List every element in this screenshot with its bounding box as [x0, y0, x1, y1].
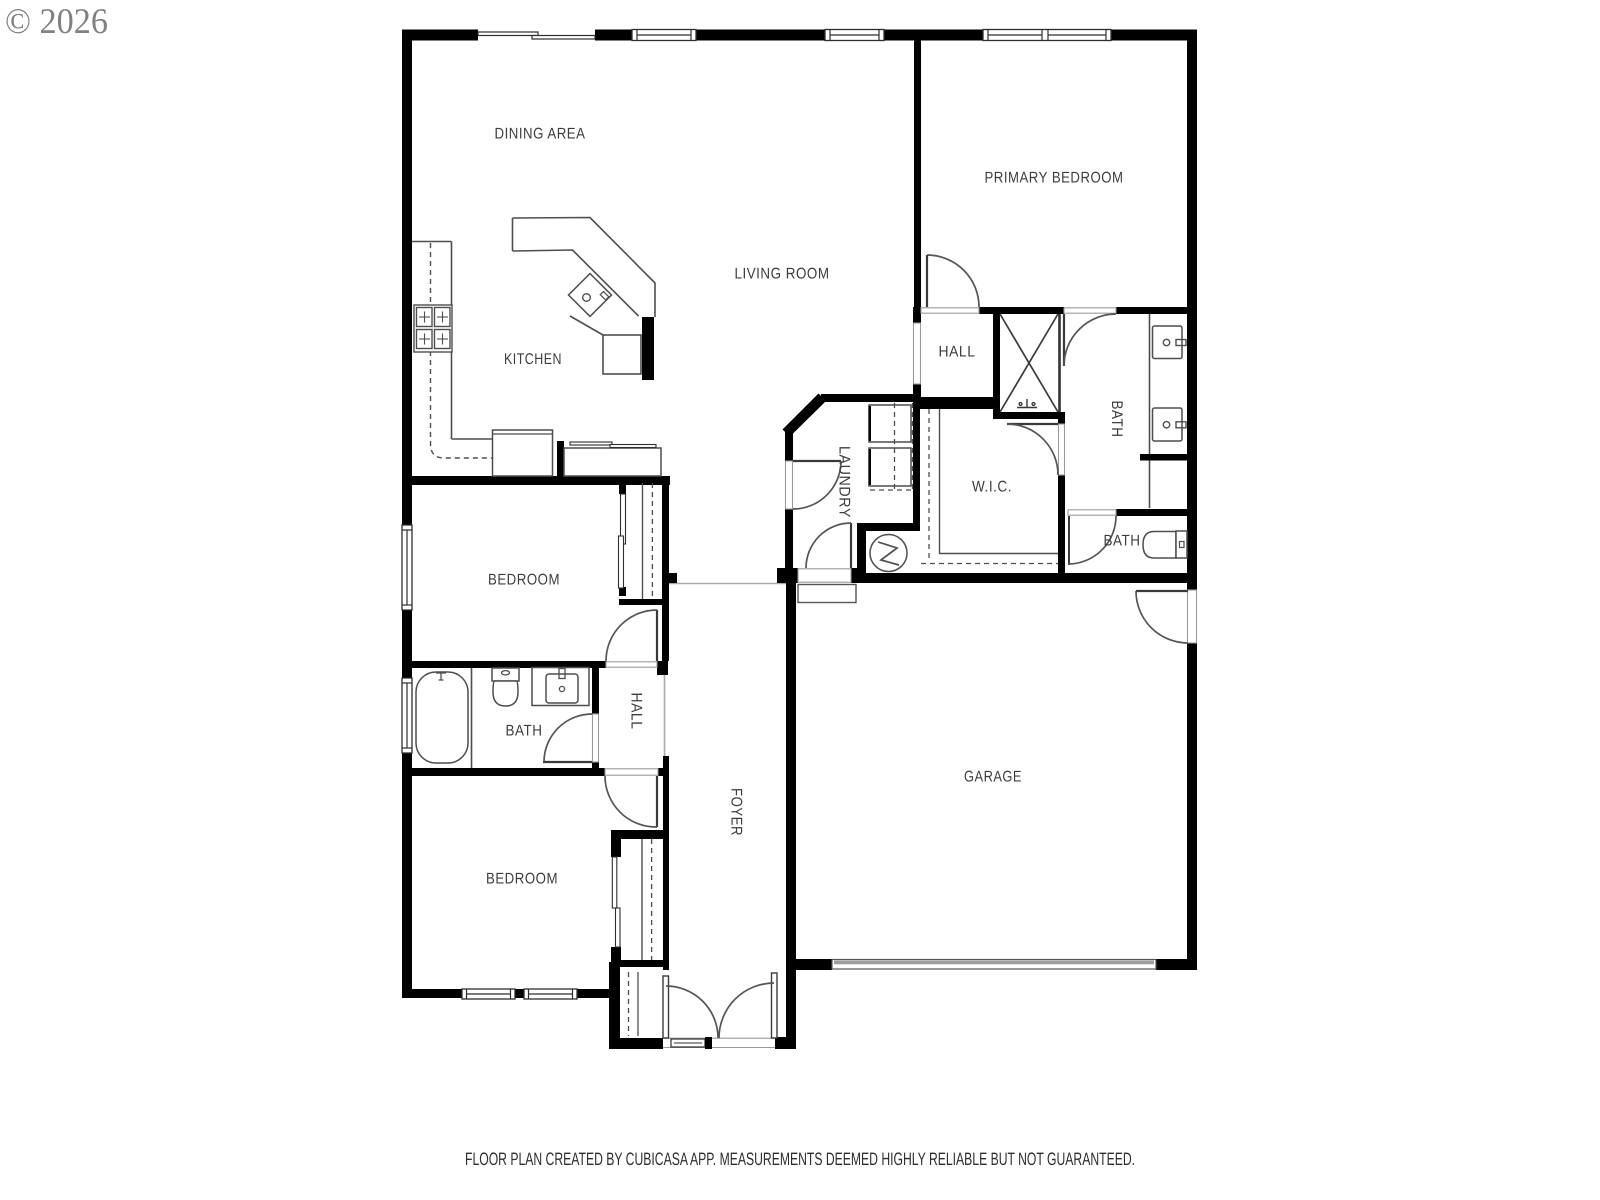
svg-text:W.I.C.: W.I.C. — [972, 479, 1012, 496]
svg-text:HALL: HALL — [628, 693, 645, 730]
svg-text:BEDROOM: BEDROOM — [488, 572, 560, 589]
svg-text:FOYER: FOYER — [728, 788, 745, 836]
svg-text:BATH: BATH — [1104, 533, 1141, 550]
svg-text:KITCHEN: KITCHEN — [504, 351, 562, 368]
svg-text:PRIMARY BEDROOM: PRIMARY BEDROOM — [985, 170, 1124, 187]
svg-text:DINING AREA: DINING AREA — [495, 126, 586, 143]
svg-text:BATH: BATH — [506, 723, 543, 740]
svg-text:LIVING ROOM: LIVING ROOM — [735, 266, 830, 283]
svg-text:BEDROOM: BEDROOM — [486, 871, 558, 888]
svg-text:FLOOR PLAN CREATED BY CUBICASA: FLOOR PLAN CREATED BY CUBICASA APP. MEAS… — [465, 1149, 1135, 1169]
svg-text:BATH: BATH — [1108, 401, 1125, 438]
svg-text:GARAGE: GARAGE — [964, 769, 1022, 786]
svg-text:LAUNDRY: LAUNDRY — [836, 446, 853, 518]
svg-text:HALL: HALL — [939, 344, 976, 361]
svg-text:© 2026: © 2026 — [5, 1, 108, 41]
